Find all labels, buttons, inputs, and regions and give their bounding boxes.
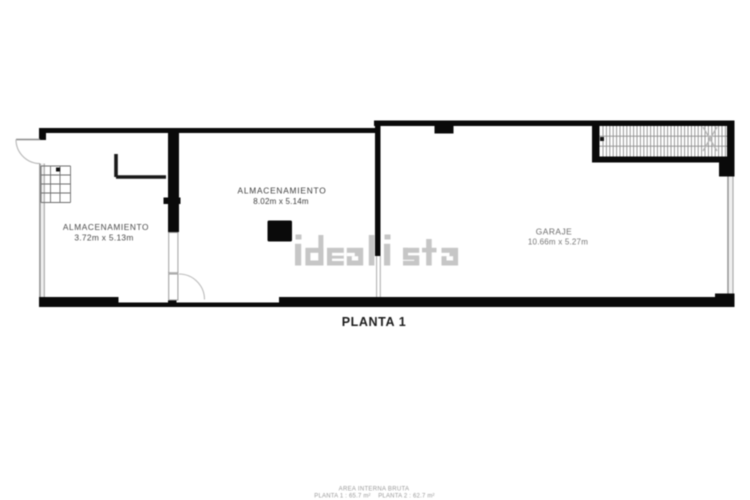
svg-text:PLANTA 1 : 65.7 m² PLANTA 2: PLANTA 1 : 65.7 m² PLANTA 2 : 62.7 m² xyxy=(314,494,435,500)
svg-text:8.02m x 5.14m: 8.02m x 5.14m xyxy=(253,197,309,206)
svg-text:ALMACENAMIENTO: ALMACENAMIENTO xyxy=(63,222,149,232)
svg-text:AREA INTERNA BRUTA: AREA INTERNA BRUTA xyxy=(339,487,410,493)
svg-text:PLANTA 1: PLANTA 1 xyxy=(342,315,407,329)
svg-text:10.66m x 5.27m: 10.66m x 5.27m xyxy=(528,238,588,247)
svg-text:ALMACENAMIENTO: ALMACENAMIENTO xyxy=(238,186,327,196)
svg-text:3.72m x 5.13m: 3.72m x 5.13m xyxy=(74,233,133,243)
svg-text:GARAJE: GARAJE xyxy=(536,227,573,237)
